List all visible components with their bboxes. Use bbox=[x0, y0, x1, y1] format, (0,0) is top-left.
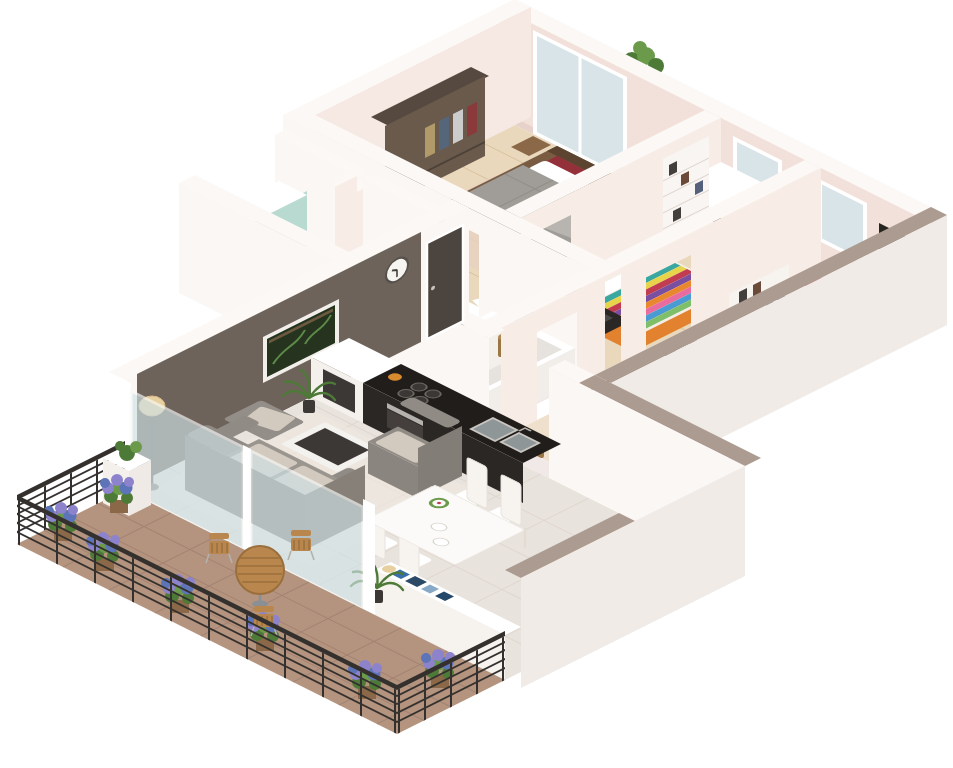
entry-door bbox=[427, 225, 463, 339]
floorplan-svg bbox=[0, 0, 953, 768]
floorplan-render bbox=[0, 0, 953, 768]
